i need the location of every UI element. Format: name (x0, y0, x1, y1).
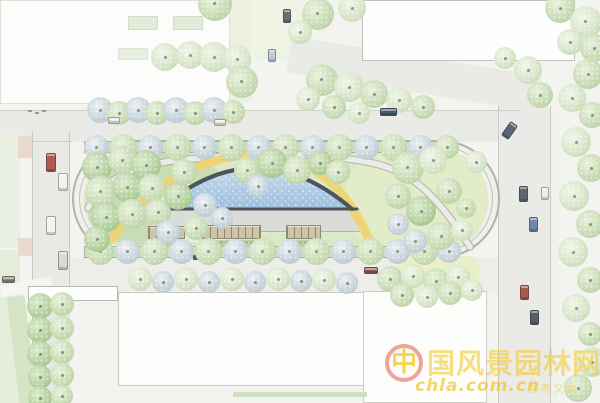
car (46, 216, 56, 235)
car (2, 276, 15, 283)
car (541, 187, 549, 200)
car (58, 251, 68, 270)
watermark-logo-char: 中 (391, 350, 417, 376)
car (519, 186, 528, 202)
car (364, 267, 378, 274)
watermark-tagline: 百考文具 (527, 380, 579, 396)
watermark-site-url: chla.com.cn (415, 376, 540, 396)
car (530, 310, 539, 325)
bus (380, 108, 397, 116)
car (58, 173, 68, 191)
car (108, 117, 120, 124)
car (283, 9, 291, 23)
bus (501, 121, 518, 140)
site-plan: 中 国风景园林网 chla.com.cn 百考文具 (0, 0, 600, 403)
car (268, 49, 276, 62)
car (520, 285, 529, 300)
watermark: 中 国风景园林网 chla.com.cn 百考文具 (385, 338, 600, 400)
car (214, 119, 226, 126)
car (529, 217, 538, 232)
car (46, 153, 56, 172)
